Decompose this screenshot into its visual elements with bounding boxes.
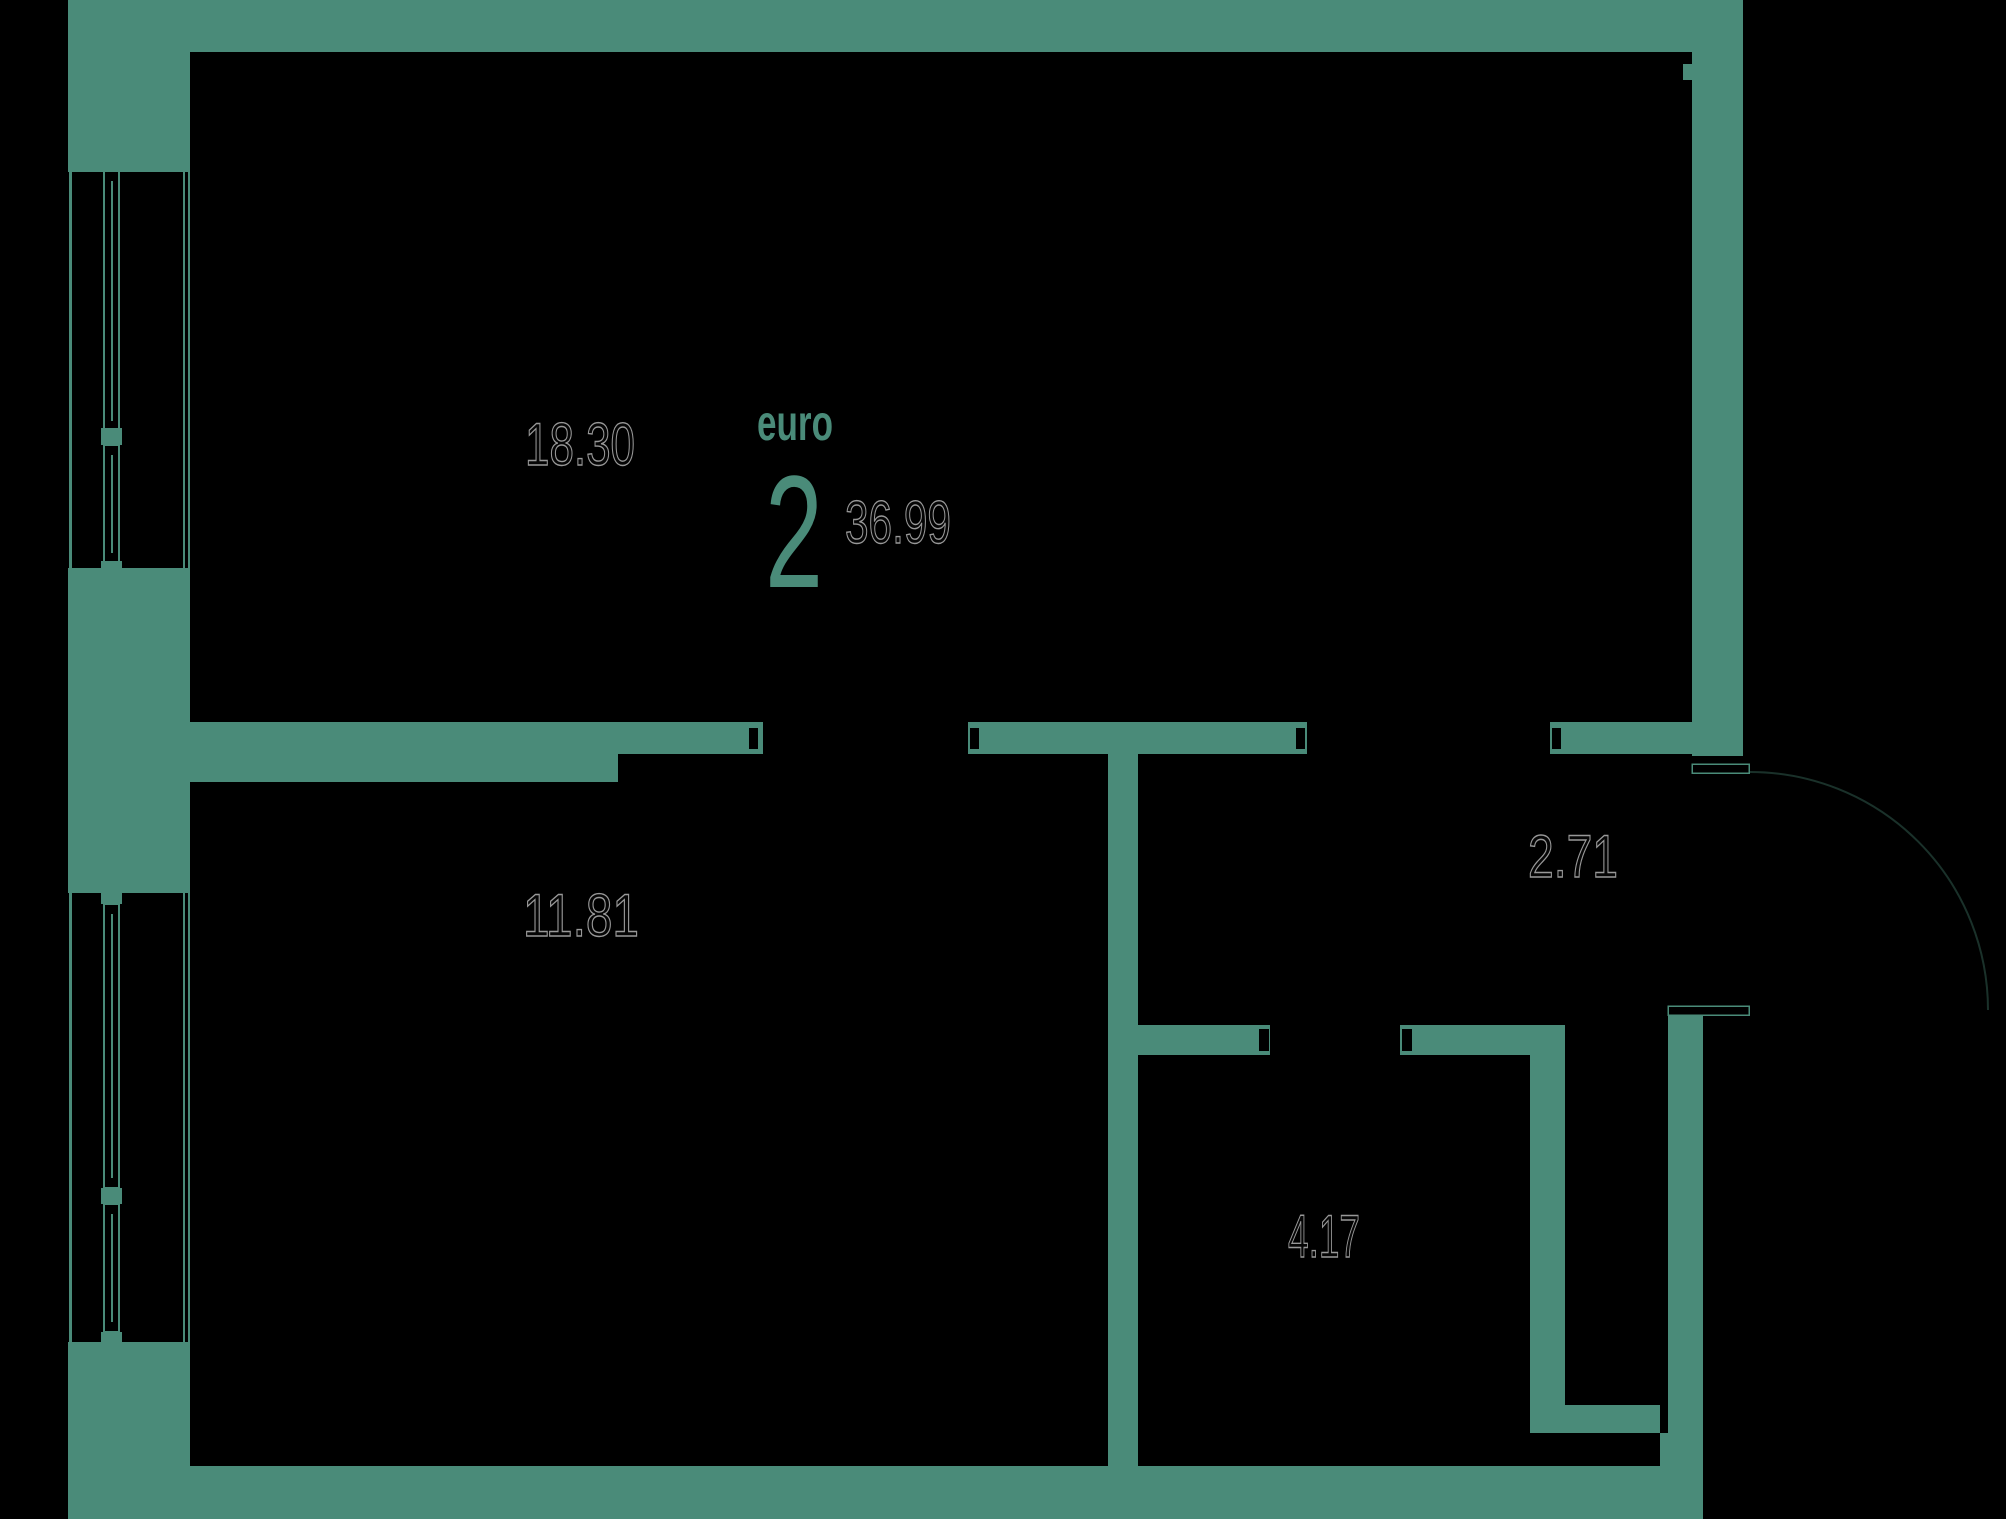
jamb-bath-left <box>1259 1029 1269 1051</box>
window2-inner-line-b <box>188 893 190 1342</box>
window2-mullion <box>101 1188 122 1204</box>
wall-right-tick <box>1683 64 1692 80</box>
wall-niche-stub <box>1530 1405 1660 1433</box>
jamb-door1-right <box>970 728 979 749</box>
window2-sash-line-lower <box>111 1214 113 1322</box>
window1-sash-line-lower <box>111 455 113 553</box>
jamb-bath-right <box>1402 1029 1412 1051</box>
window2-sash-line-upper <box>111 914 113 1178</box>
window1-sash-line-upper <box>111 181 113 421</box>
window1-inner-line-a <box>183 172 185 568</box>
wall-interior-horizontal-a <box>618 722 763 754</box>
window1-mullion <box>101 428 122 445</box>
logo-total-area: 36.99 <box>845 489 951 556</box>
wall-top <box>68 0 1743 52</box>
wall-right-lower <box>1668 1014 1703 1519</box>
floorplan-canvas: 18.3011.812.714.17euro236.99 <box>0 0 2006 1519</box>
wall-left-middle <box>68 568 190 893</box>
wall-bathroom-top-left <box>1138 1025 1270 1055</box>
wall-bottom <box>190 1466 1703 1519</box>
area-label-room-top: 18.30 <box>525 411 635 478</box>
wall-left-bottom <box>68 1342 190 1519</box>
window2-inner-line-a <box>183 893 185 1342</box>
wall-interior-vertical <box>1108 754 1138 1466</box>
window1-inner-line-b <box>188 172 190 568</box>
window2-head-block <box>101 887 122 904</box>
entry-threshold-bottom <box>1668 1006 1749 1015</box>
jamb-door1-left <box>749 728 758 749</box>
wall-right-upper <box>1692 0 1743 756</box>
wall-bathroom-top-right <box>1400 1025 1530 1055</box>
wall-interior-horizontal-b <box>968 722 1307 754</box>
jamb-door2-left <box>1296 728 1305 749</box>
window1-sill-block <box>101 561 122 578</box>
wall-bathroom-partition <box>1530 1025 1565 1433</box>
entry-threshold-top <box>1692 764 1749 773</box>
wall-left-top <box>68 0 190 172</box>
floor-plan-image: 18.3011.812.714.17euro236.99 <box>0 0 2006 1519</box>
area-label-room-bottom: 11.81 <box>523 882 639 949</box>
window1-outer-line <box>69 172 72 568</box>
area-label-bathroom: 4.17 <box>1288 1203 1360 1270</box>
area-label-hallway: 2.71 <box>1528 823 1618 890</box>
jamb-door2-right <box>1552 728 1561 749</box>
wall-interior-horizontal-c <box>1550 722 1692 754</box>
wall-interior-horizontal-thick <box>183 722 618 782</box>
wall-niche-post <box>1660 1433 1668 1466</box>
window2-sill-block <box>101 1332 122 1348</box>
window2-outer-line <box>69 893 72 1342</box>
logo-rooms-count: 2 <box>765 442 823 621</box>
